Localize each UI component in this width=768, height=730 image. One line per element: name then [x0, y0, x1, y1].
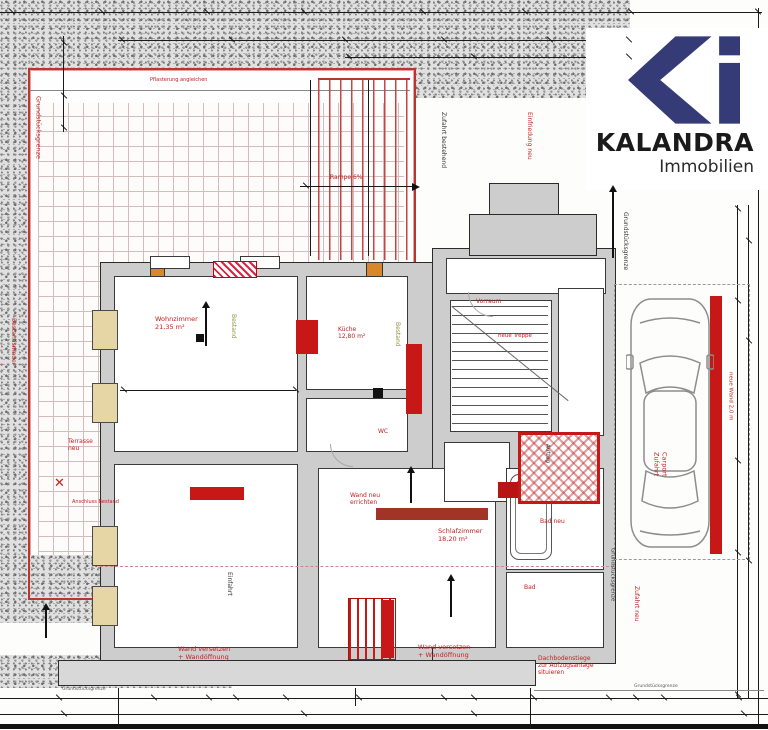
annotation-kueche: Küche 12,80 m² [338, 326, 365, 340]
annotation-wand-neu: Wand neu errichten [350, 492, 380, 506]
annotation-bad: Bad [524, 584, 536, 591]
annotations-layer: GrundstücksgrenzeBestandsmauerTerrasse n… [0, 0, 768, 730]
annotation-bestand-2: Bestand [394, 322, 401, 347]
annotation-note-rechts: Dachbodenstiege zur Aufzugsanlage situie… [538, 655, 594, 676]
annotation-zufahrt-neu: Zufahrt neu [633, 586, 640, 622]
annotation-wohnzimmer: Wohnzimmer 21,35 m² [155, 316, 198, 331]
annotation-bad-neu: Bad neu [540, 518, 565, 525]
annotation-rampe: Rampe 6% [330, 174, 362, 181]
annotation-neue-treppe: neue Treppe [498, 333, 532, 339]
annotation-einfriedung-neu: Einfriedung neu [526, 112, 533, 160]
annotation-grenze-right: Grundstücksgrenze [622, 212, 629, 270]
annotation-anschluss: Anschluss Bestand [72, 500, 119, 506]
annotation-schlafzimmer: Schlafzimmer 18,20 m² [438, 528, 482, 543]
annotation-grenze-lbl-bl: Grundstücksgrenze [62, 687, 106, 692]
floor-plan-canvas: KALANDRA Immobilien GrundstücksgrenzeBes… [0, 0, 768, 730]
annotation-vorraum: Vorraum [476, 298, 501, 305]
annotation-pflaster: Pflasterung angleichen [150, 78, 207, 84]
annotation-note-links: Wand versetzen + Wandöffnung [178, 646, 230, 661]
annotation-carport: Carport Zufahrt [652, 452, 667, 477]
annotation-terrasse-neu: Terrasse neu [68, 438, 93, 452]
annotation-bestand-1: Bestand [230, 314, 237, 339]
annotation-grenze-lbl-br: Grundstücksgrenze [634, 684, 678, 689]
annotation-neue-wand: neue Wand 2,0 m [727, 372, 733, 421]
annotation-aufzug: Aufzug [544, 444, 550, 463]
annotation-grenze-bottom: Grundstücksgrenze [609, 548, 615, 601]
annotation-zufahrt-bestehend: Zufahrt bestehend [440, 112, 447, 168]
annotation-einfahrt: Einfahrt [226, 572, 233, 596]
annotation-grenze-left: Grundstücksgrenze [34, 96, 42, 159]
annotation-x-mark: ✕ [54, 476, 65, 491]
annotation-note-mitte: Wand versetzen + Wandöffnung [418, 644, 470, 659]
annotation-wc: WC [378, 428, 388, 435]
annotation-bestandsmauer: Bestandsmauer [10, 318, 17, 365]
